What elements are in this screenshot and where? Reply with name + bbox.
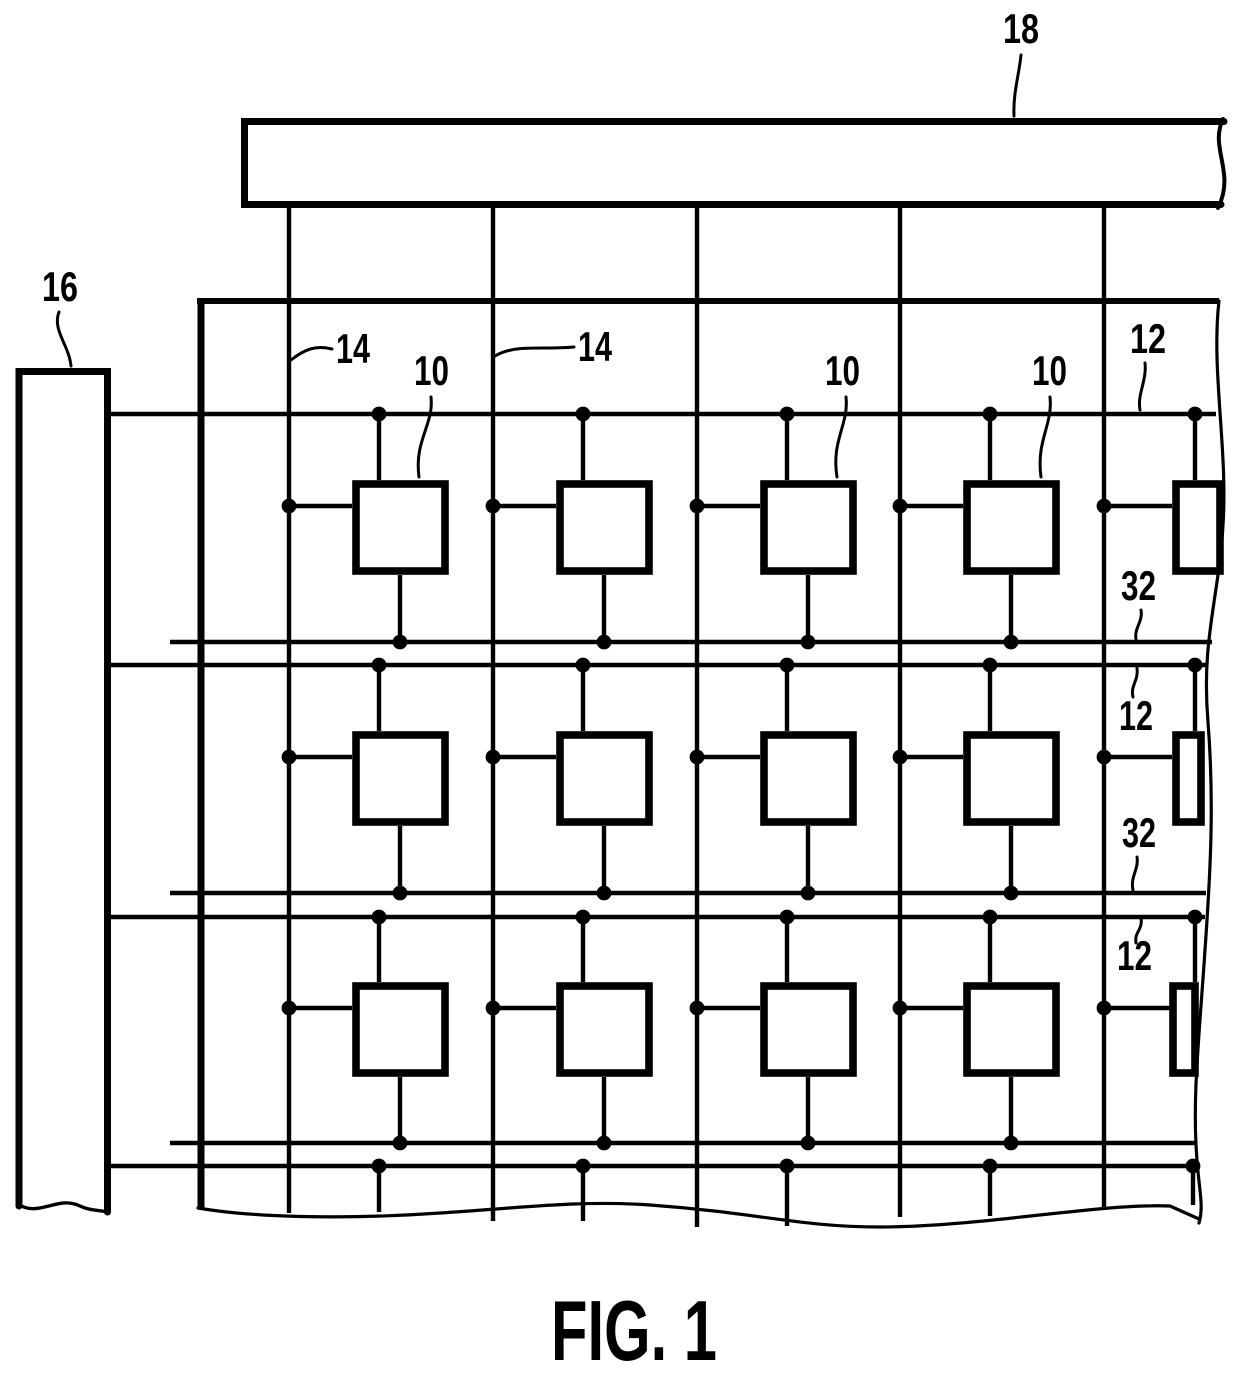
svg-text:FIG. 1: FIG. 1	[551, 1284, 717, 1375]
svg-text:10: 10	[1032, 347, 1067, 394]
svg-text:14: 14	[336, 325, 370, 372]
svg-text:10: 10	[414, 347, 449, 394]
svg-text:16: 16	[42, 263, 78, 310]
svg-text:14: 14	[578, 323, 612, 370]
svg-text:32: 32	[1122, 809, 1156, 856]
svg-text:12: 12	[1130, 315, 1166, 362]
svg-text:18: 18	[1003, 5, 1039, 52]
svg-text:12: 12	[1119, 692, 1153, 739]
svg-text:10: 10	[825, 347, 860, 394]
svg-text:32: 32	[1121, 562, 1156, 609]
